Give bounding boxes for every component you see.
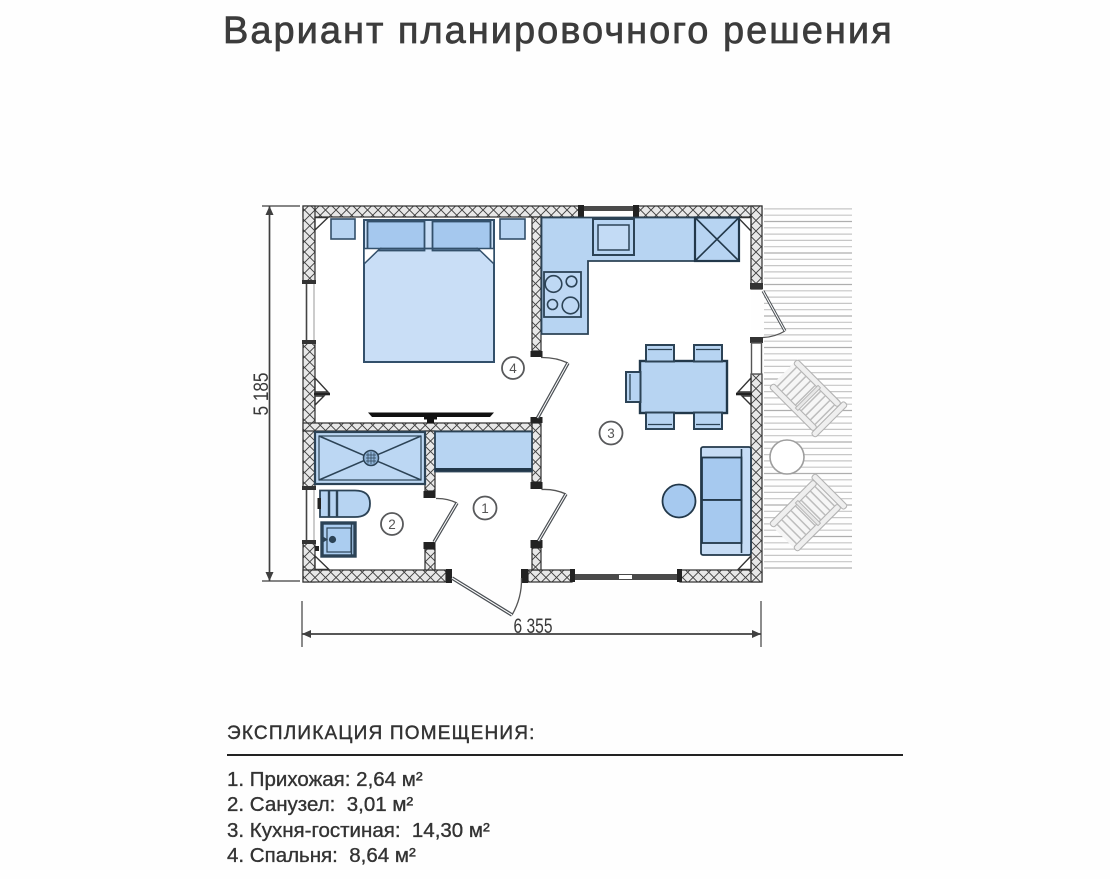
- svg-text:3: 3: [607, 426, 615, 441]
- svg-text:4: 4: [509, 361, 517, 376]
- svg-text:1: 1: [481, 501, 489, 516]
- svg-text:5 185: 5 185: [249, 372, 273, 415]
- svg-text:2: 2: [388, 517, 396, 532]
- svg-text:6 355: 6 355: [514, 614, 553, 638]
